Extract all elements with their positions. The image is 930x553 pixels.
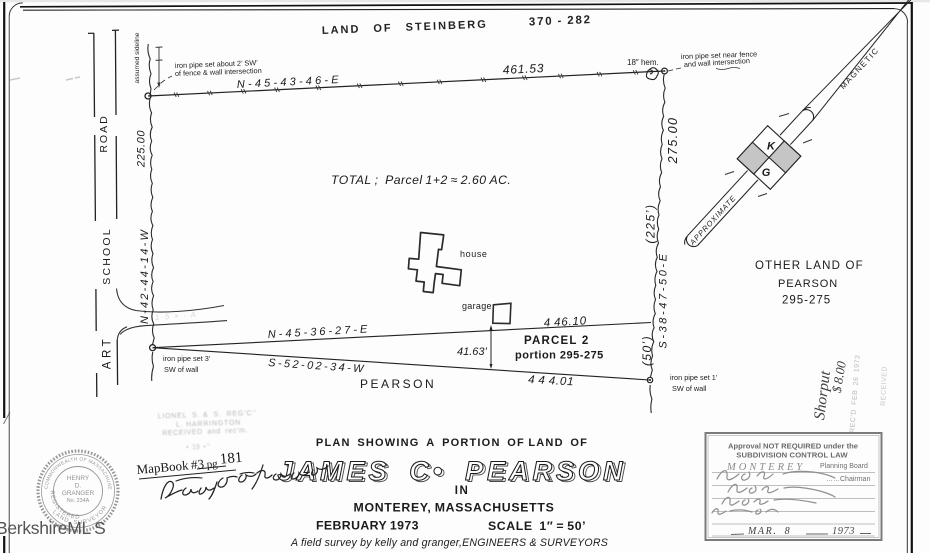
svg-text:S-52-02-34-W: S-52-02-34-W bbox=[268, 357, 366, 375]
svg-text:370 - 282: 370 - 282 bbox=[529, 14, 592, 28]
svg-text:461.53: 461.53 bbox=[502, 61, 544, 77]
svg-text:A field survey by kelly and g: A field survey by kelly and granger,ENGI… bbox=[290, 537, 608, 549]
svg-text:iron pipe set 3’: iron pipe set 3’ bbox=[163, 354, 211, 363]
svg-text:SCHOOL: SCHOOL bbox=[101, 227, 113, 285]
svg-text:N-45-36-27-E: N-45-36-27-E bbox=[267, 323, 370, 341]
svg-text:No. 234A: No. 234A bbox=[67, 498, 90, 504]
svg-text:G: G bbox=[762, 167, 771, 179]
svg-text:ROAD: ROAD bbox=[98, 114, 110, 152]
svg-text:PEARSON: PEARSON bbox=[778, 278, 838, 290]
svg-text:41.63’: 41.63’ bbox=[457, 346, 488, 358]
svg-text:PEARSON: PEARSON bbox=[360, 377, 436, 391]
svg-text:OTHER LAND OF: OTHER LAND OF bbox=[755, 260, 864, 272]
svg-text:COMMONWEALTH OF MASSACHUSETTS: COMMONWEALTH OF MASSACHUSETTS bbox=[0, 0, 113, 490]
svg-text:(225’): (225’) bbox=[644, 203, 658, 243]
svg-text:LAND OF STEINBERG: LAND OF STEINBERG bbox=[322, 19, 488, 37]
svg-text:MONTEREY, MASSACHUSETTS: MONTEREY, MASSACHUSETTS bbox=[354, 501, 555, 515]
svg-text:N-45-43-46-E: N-45-43-46-E bbox=[237, 74, 343, 91]
svg-text:PARCEL 2: PARCEL 2 bbox=[524, 335, 589, 347]
svg-text:1·5 × · A: 1·5 × · A bbox=[155, 310, 198, 322]
svg-text:18″ hem.: 18″ hem. bbox=[627, 58, 659, 67]
svg-text:APPROXIMATE: APPROXIMATE bbox=[687, 193, 738, 247]
svg-text:1973: 1973 bbox=[832, 526, 855, 537]
svg-text:portion 295-275: portion 295-275 bbox=[515, 350, 604, 362]
svg-text:JAMES C• PEARSON: JAMES C• PEARSON bbox=[277, 456, 626, 486]
svg-text:K: K bbox=[767, 141, 776, 153]
svg-text:Planning Board: Planning Board bbox=[820, 463, 868, 470]
svg-text:295-275: 295-275 bbox=[782, 295, 831, 307]
svg-text:RECEIVED and rec’m.: RECEIVED and rec’m. bbox=[162, 427, 248, 437]
svg-text:Approval NOT REQUIRED under th: Approval NOT REQUIRED under the bbox=[728, 442, 858, 451]
svg-text:LIONEL S. & S. REG’C’’: LIONEL S. & S. REG’C’’ bbox=[158, 410, 257, 420]
svg-text:N-42-44-14-W: N-42-44-14-W bbox=[139, 228, 151, 324]
svg-text:GRANGER: GRANGER bbox=[62, 490, 95, 497]
svg-text:4 4 4.01: 4 4 4.01 bbox=[528, 374, 575, 388]
svg-text:house: house bbox=[460, 249, 488, 259]
svg-text:TOTAL ; Parcel 1+2 ≈ 2.60 AC.: TOTAL ; Parcel 1+2 ≈ 2.60 AC. bbox=[331, 173, 511, 187]
svg-text:MAR. 8: MAR. 8 bbox=[747, 526, 791, 537]
svg-text:assumed sideline: assumed sideline bbox=[134, 32, 141, 83]
svg-text:ART: ART bbox=[102, 336, 114, 370]
svg-text:BerkshireML S: BerkshireML S bbox=[0, 518, 106, 538]
svg-text:MapBook #3 pg 181: MapBook #3 pg 181 bbox=[136, 450, 243, 477]
svg-text:HENRY: HENRY bbox=[67, 475, 90, 482]
svg-text:SCALE 1″ = 50’: SCALE 1″ = 50’ bbox=[488, 519, 586, 533]
svg-text:of fence & wall intersection: of fence & wall intersection bbox=[175, 66, 262, 78]
svg-text:S-38-47-50-E: S-38-47-50-E bbox=[657, 251, 669, 348]
svg-text:iron pipe set 1’: iron pipe set 1’ bbox=[670, 373, 718, 382]
svg-text:• 19 • ’’: • 19 • ’’ bbox=[185, 444, 211, 452]
svg-text:SUBDIVISION CONTROL LAW: SUBDIVISION CONTROL LAW bbox=[736, 451, 848, 460]
svg-text:RECEIVED: RECEIVED bbox=[880, 366, 888, 406]
svg-text:D.: D. bbox=[75, 483, 82, 490]
svg-text:275.00: 275.00 bbox=[666, 117, 680, 165]
svg-text:SW of wall: SW of wall bbox=[672, 384, 707, 393]
svg-text:4 46.10: 4 46.10 bbox=[544, 315, 588, 329]
svg-text:PLAN SHOWING A PORTION OF LAND: PLAN SHOWING A PORTION OF LAND OF bbox=[316, 437, 588, 449]
svg-text:REC’D FEB 26 1973: REC’D FEB 26 1973 bbox=[849, 355, 861, 434]
svg-text:225.00: 225.00 bbox=[135, 130, 147, 169]
svg-text:garage: garage bbox=[462, 301, 492, 311]
svg-text:FEBRUARY 1973: FEBRUARY 1973 bbox=[316, 519, 419, 533]
svg-text:IN: IN bbox=[455, 485, 470, 497]
svg-text:SW of wall: SW of wall bbox=[164, 365, 199, 374]
svg-text:(50’): (50’) bbox=[640, 335, 654, 366]
svg-text:$ 8.00: $ 8.00 bbox=[828, 359, 849, 396]
